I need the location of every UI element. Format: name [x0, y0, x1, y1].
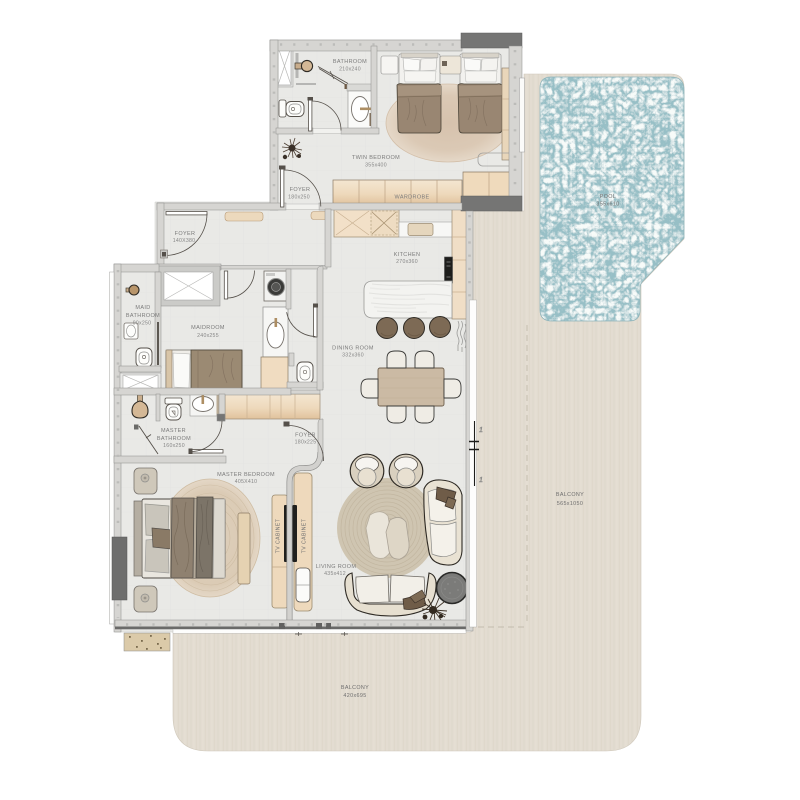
svg-text:TWIN BEDROOM: TWIN BEDROOM	[352, 155, 400, 161]
svg-text:MAIDROOM: MAIDROOM	[191, 325, 225, 331]
svg-text:240x255: 240x255	[197, 333, 219, 339]
svg-text:MASTER BEDROOM: MASTER BEDROOM	[217, 472, 275, 478]
svg-text:FOYER: FOYER	[175, 231, 196, 237]
svg-text:435x412: 435x412	[324, 571, 346, 577]
svg-text:MAID: MAID	[135, 305, 150, 311]
svg-text:BALCONY: BALCONY	[556, 492, 584, 498]
svg-text:BALCONY: BALCONY	[341, 685, 369, 691]
svg-text:160x250: 160x250	[163, 443, 185, 449]
svg-text:1: 1	[479, 477, 483, 484]
svg-text:WARDROBE: WARDROBE	[395, 195, 430, 201]
svg-text:405X410: 405X410	[235, 479, 258, 485]
svg-text:565x1050: 565x1050	[557, 501, 583, 507]
svg-text:KITCHEN: KITCHEN	[394, 252, 421, 258]
svg-text:MASTER: MASTER	[161, 428, 186, 434]
svg-text:210x240: 210x240	[339, 67, 361, 73]
svg-text:BATHROOM: BATHROOM	[126, 313, 160, 319]
svg-text:BATHROOM: BATHROOM	[333, 59, 367, 65]
svg-text:LIVING ROOM: LIVING ROOM	[316, 564, 357, 570]
svg-text:1: 1	[479, 427, 483, 434]
svg-text:FOYER: FOYER	[295, 433, 316, 439]
svg-text:BATHROOM: BATHROOM	[157, 436, 191, 442]
svg-text:355x400: 355x400	[365, 163, 387, 169]
svg-text:POOL: POOL	[600, 194, 616, 200]
svg-text:270x360: 270x360	[396, 259, 418, 265]
svg-text:180x250: 180x250	[288, 195, 310, 201]
svg-text:TV CABINET: TV CABINET	[302, 519, 308, 554]
svg-text:355x610: 355x610	[596, 202, 619, 208]
svg-text:FOYER: FOYER	[290, 187, 311, 193]
svg-text:DINING ROOM: DINING ROOM	[332, 346, 374, 352]
svg-text:180x225: 180x225	[295, 440, 317, 446]
svg-text:90x250: 90x250	[133, 321, 152, 327]
svg-text:420x695: 420x695	[343, 693, 366, 699]
svg-text:140X380: 140X380	[173, 238, 196, 244]
svg-text:332x360: 332x360	[342, 353, 364, 359]
svg-text:TV CABINET: TV CABINET	[276, 519, 282, 554]
